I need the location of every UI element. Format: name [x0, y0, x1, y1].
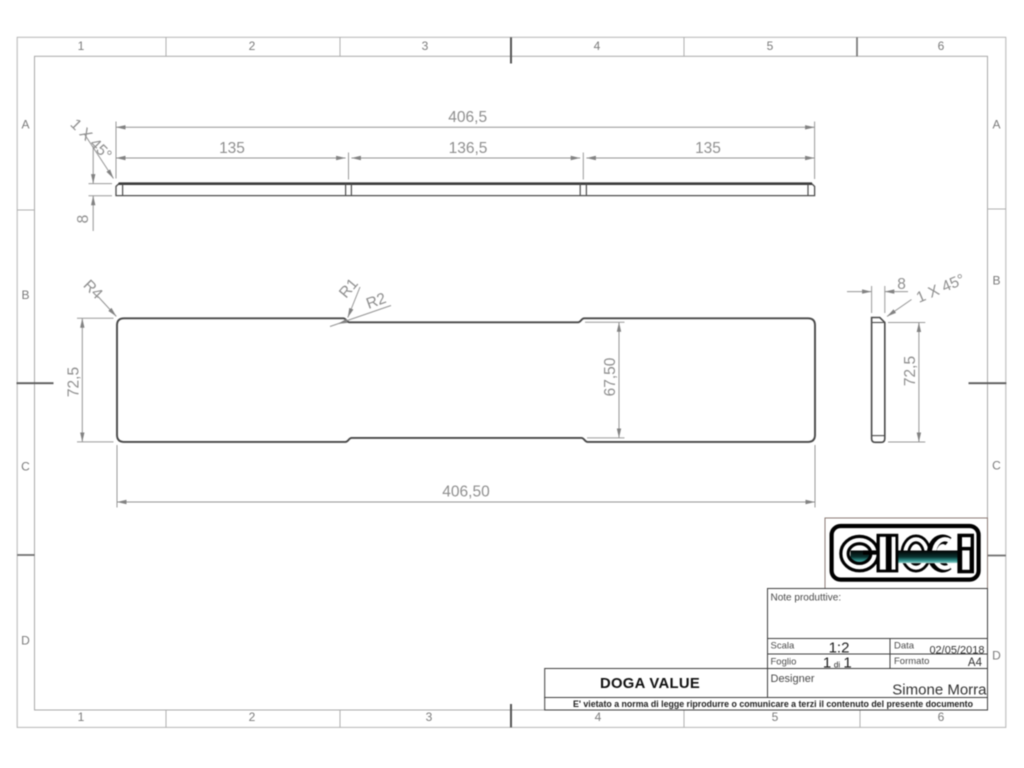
svg-text:DOGA VALUE: DOGA VALUE	[600, 676, 700, 692]
svg-text:Formato: Formato	[894, 656, 929, 667]
svg-text:02/05/2018: 02/05/2018	[929, 645, 984, 657]
svg-text:Note produttive:: Note produttive:	[771, 593, 842, 604]
svg-text:Scala: Scala	[771, 641, 795, 652]
svg-text:6: 6	[938, 710, 945, 724]
svg-text:A: A	[992, 117, 1000, 131]
svg-text:1: 1	[78, 710, 85, 724]
svg-text:D: D	[21, 633, 30, 647]
svg-text:D: D	[992, 648, 1001, 662]
svg-text:Foglio: Foglio	[771, 657, 797, 668]
svg-text:Data: Data	[894, 641, 915, 652]
svg-text:72,5: 72,5	[66, 367, 83, 397]
svg-text:C: C	[21, 459, 30, 473]
svg-text:1: 1	[78, 39, 85, 53]
svg-text:67,50: 67,50	[602, 357, 619, 396]
svg-text:6: 6	[938, 39, 945, 53]
svg-text:3: 3	[426, 710, 433, 724]
svg-text:4: 4	[594, 39, 601, 53]
svg-text:135: 135	[219, 140, 245, 157]
svg-text:5: 5	[772, 710, 779, 724]
svg-text:C: C	[992, 458, 1001, 472]
svg-text:4: 4	[595, 710, 602, 724]
svg-text:B: B	[21, 288, 29, 302]
svg-text:B: B	[992, 273, 1000, 287]
svg-text:135: 135	[695, 140, 721, 157]
svg-text:2: 2	[249, 39, 256, 53]
svg-text:A: A	[21, 117, 29, 131]
svg-text:8: 8	[897, 276, 906, 293]
svg-text:E' vietato a norma di legge ri: E' vietato a norma di legge riprodurre o…	[573, 699, 974, 709]
svg-text:5: 5	[767, 39, 774, 53]
svg-text:406,5: 406,5	[448, 109, 487, 126]
svg-text:72,5: 72,5	[902, 356, 919, 386]
svg-text:8: 8	[75, 215, 92, 224]
svg-text:Designer: Designer	[771, 673, 815, 685]
svg-text:A4: A4	[968, 657, 983, 669]
svg-text:3: 3	[422, 39, 429, 53]
svg-text:Simone Morra: Simone Morra	[892, 681, 987, 698]
svg-text:2: 2	[249, 710, 256, 724]
svg-text:406,50: 406,50	[442, 484, 490, 501]
svg-text:136,5: 136,5	[449, 140, 488, 157]
